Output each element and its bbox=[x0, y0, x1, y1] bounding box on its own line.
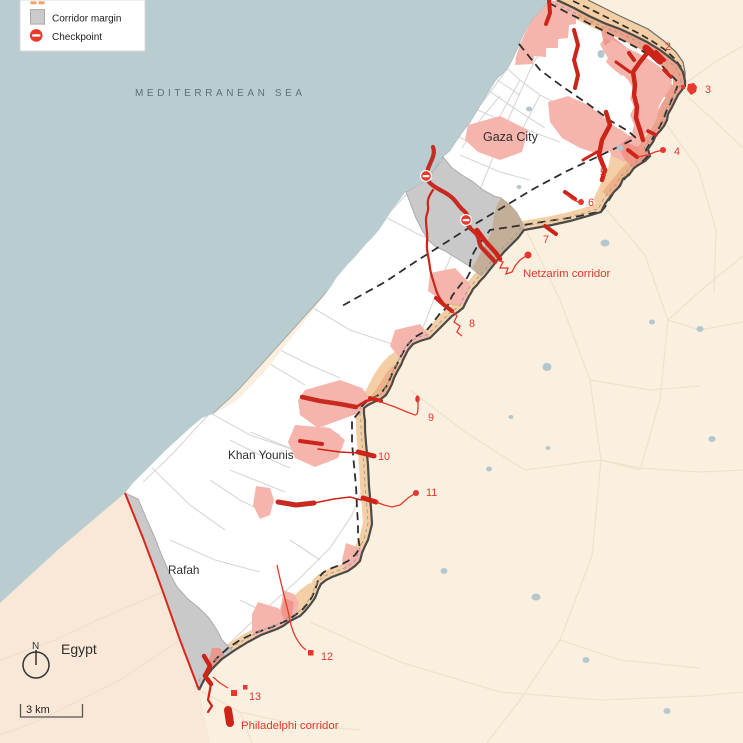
svg-text:12: 12 bbox=[321, 651, 333, 663]
svg-text:5: 5 bbox=[600, 167, 606, 179]
svg-text:Corridor margin: Corridor margin bbox=[52, 14, 121, 25]
svg-text:Rafah: Rafah bbox=[168, 563, 199, 577]
svg-text:13: 13 bbox=[249, 691, 261, 703]
svg-text:11: 11 bbox=[426, 487, 437, 499]
svg-text:MEDITERRANEAN SEA: MEDITERRANEAN SEA bbox=[135, 88, 306, 99]
svg-text:N: N bbox=[32, 641, 39, 652]
svg-text:Netzarim corridor: Netzarim corridor bbox=[523, 268, 611, 280]
svg-text:2: 2 bbox=[665, 41, 671, 53]
svg-text:Egypt: Egypt bbox=[61, 641, 97, 657]
svg-text:Khan Younis: Khan Younis bbox=[228, 448, 294, 462]
svg-text:8: 8 bbox=[469, 318, 475, 330]
svg-text:3 km: 3 km bbox=[26, 704, 50, 716]
svg-text:6: 6 bbox=[588, 197, 594, 209]
svg-text:Philadelphi corridor: Philadelphi corridor bbox=[241, 720, 339, 732]
svg-text:7: 7 bbox=[543, 234, 549, 246]
svg-text:10: 10 bbox=[378, 451, 390, 463]
svg-text:Checkpoint: Checkpoint bbox=[52, 32, 102, 43]
svg-text:Gaza City: Gaza City bbox=[483, 130, 539, 144]
svg-text:4: 4 bbox=[674, 146, 680, 158]
svg-text:3: 3 bbox=[705, 84, 711, 96]
svg-text:9: 9 bbox=[428, 412, 434, 424]
